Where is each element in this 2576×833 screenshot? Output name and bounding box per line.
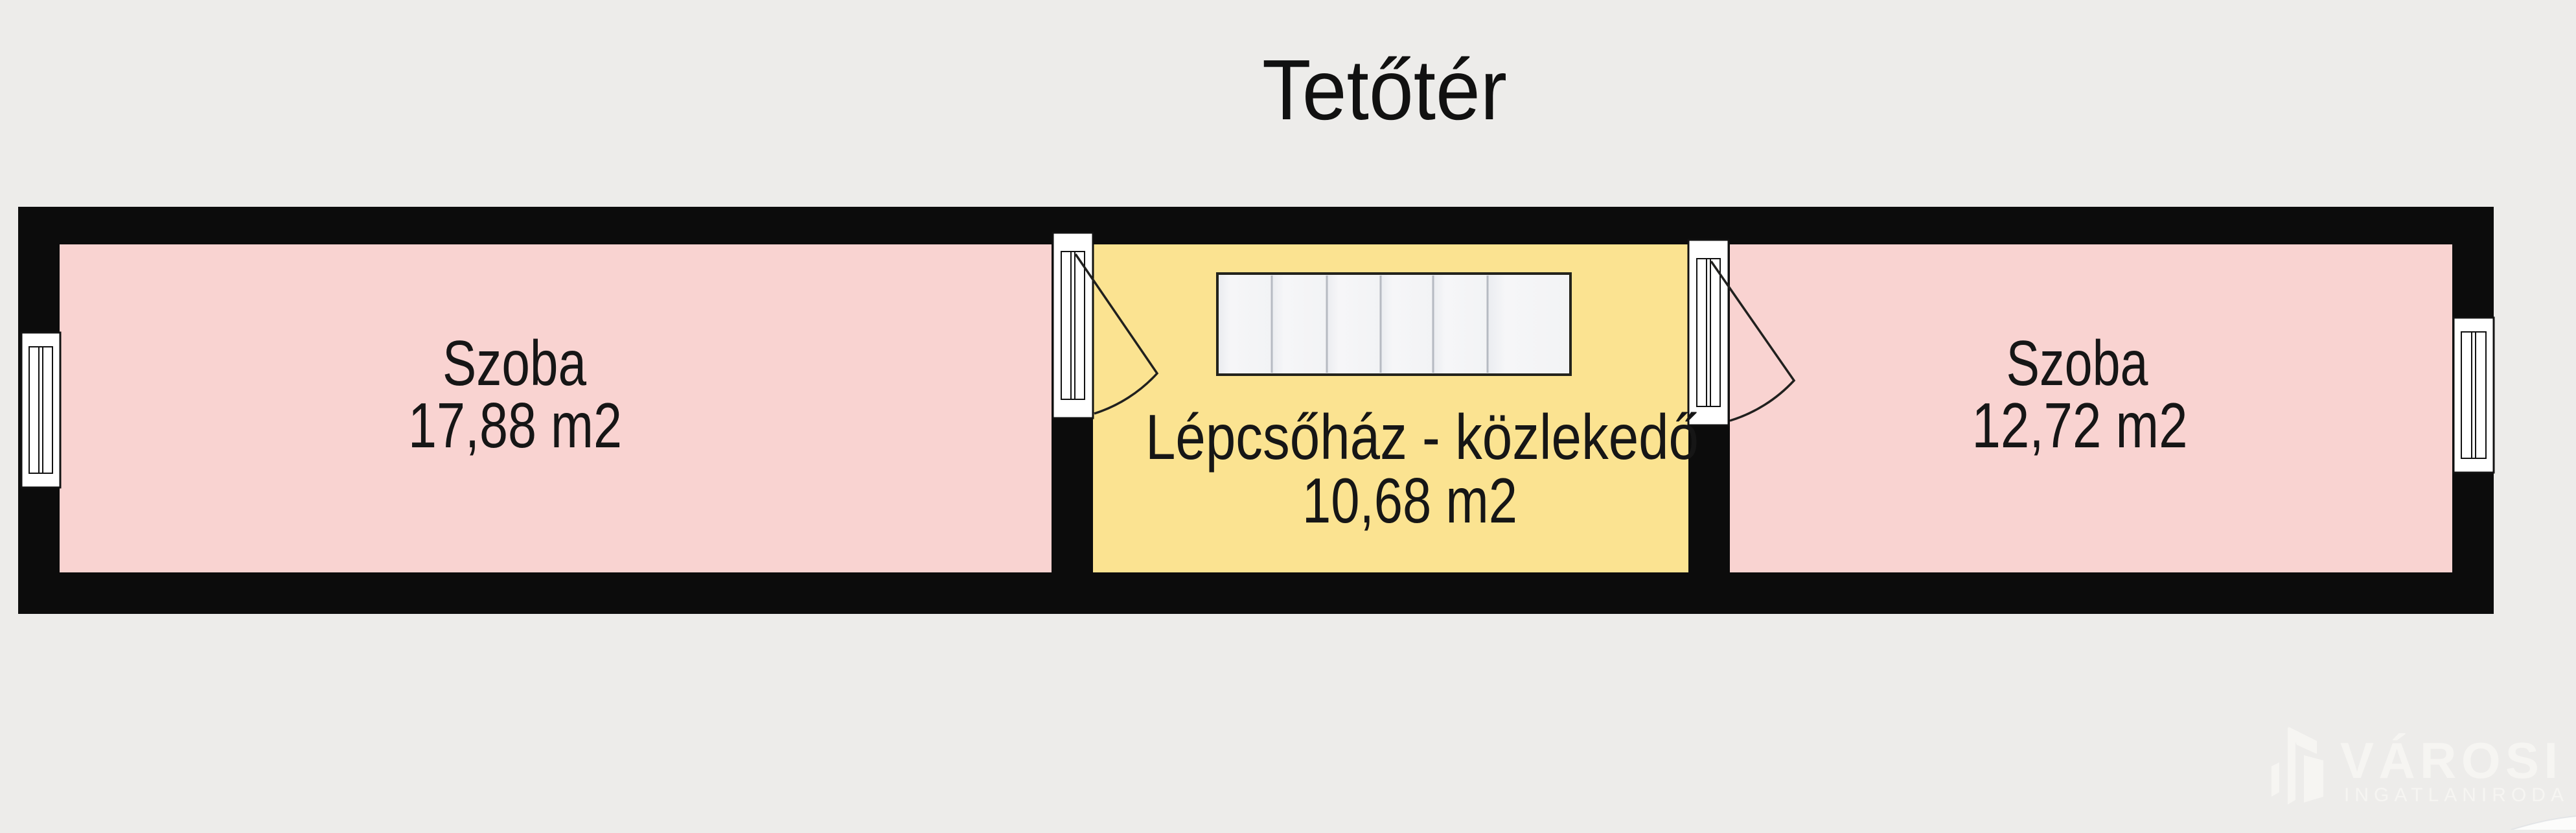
svg-text:Szoba: Szoba <box>2007 327 2148 399</box>
svg-text:12,72 m2: 12,72 m2 <box>1972 390 2188 461</box>
svg-text:Tetőtér: Tetőtér <box>1262 42 1507 137</box>
svg-text:Lépcsőház - közlekedő: Lépcsőház - közlekedő <box>1145 401 1699 473</box>
svg-text:Szoba: Szoba <box>443 327 586 399</box>
svg-text:10,68 m2: 10,68 m2 <box>1302 465 1517 536</box>
svg-text:VÁROSI: VÁROSI <box>2340 732 2558 789</box>
svg-text:17,88 m2: 17,88 m2 <box>408 390 622 461</box>
